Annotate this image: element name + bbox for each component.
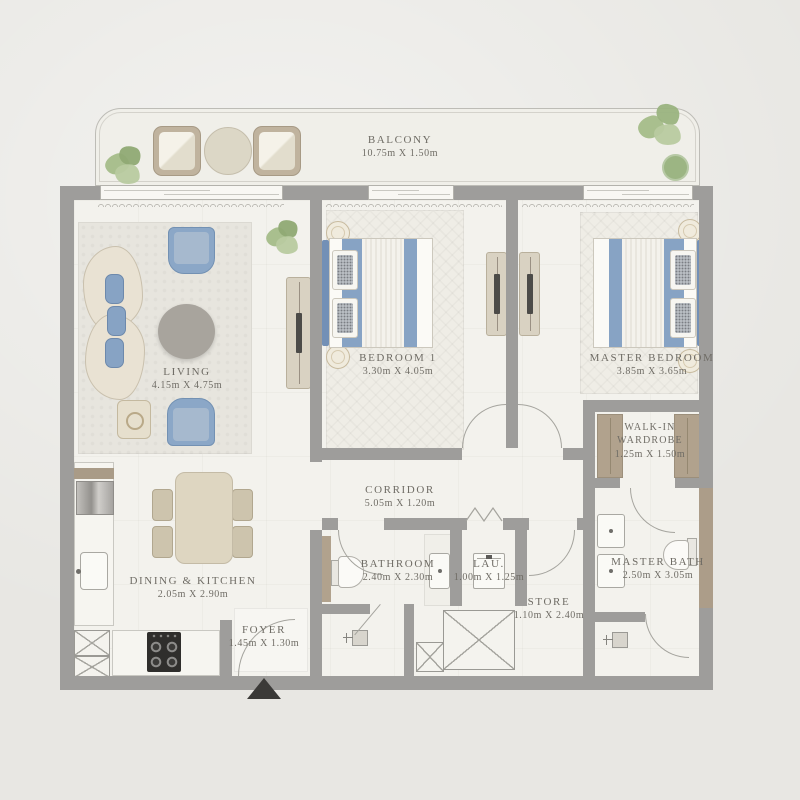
kitchen-cabinet bbox=[74, 656, 110, 678]
room-label-bedroom1: BEDROOM 1 3.30m X 4.05m bbox=[359, 352, 437, 377]
room-dims: 3.30m X 4.05m bbox=[359, 366, 437, 377]
balcony-round-table bbox=[204, 127, 252, 175]
room-dims: 1.10m X 2.40m bbox=[514, 610, 585, 621]
curtain-living bbox=[98, 201, 284, 207]
dining-chair bbox=[232, 489, 253, 521]
wall-living-bedroom1 bbox=[310, 200, 322, 462]
room-dims: 1.00m X 1.25m bbox=[454, 572, 525, 583]
room-label-bathroom: BATHROOM 2.40m X 2.30m bbox=[361, 558, 436, 583]
plant-leaf bbox=[114, 162, 142, 185]
room-name: MASTER BATH bbox=[611, 556, 705, 568]
room-name: WALK-IN WARDROBE bbox=[608, 422, 692, 447]
balcony-chair bbox=[253, 126, 301, 176]
kitchen-sink bbox=[80, 552, 108, 590]
room-name: LIVING bbox=[152, 366, 223, 378]
room-name: BATHROOM bbox=[361, 558, 436, 570]
room-dims: 2.05m X 2.90m bbox=[129, 589, 256, 600]
room-name: LAU. bbox=[454, 558, 525, 570]
wall-foyer-east bbox=[310, 530, 322, 676]
wall-wood-accent bbox=[699, 488, 713, 608]
wall-corridor-south bbox=[322, 518, 338, 530]
tv-console-living bbox=[286, 277, 311, 389]
room-dims: 1.45m X 1.30m bbox=[229, 638, 300, 649]
kitchen-shelf bbox=[74, 468, 114, 479]
room-name: BEDROOM 1 bbox=[359, 352, 437, 364]
room-dims: 2.40m X 2.30m bbox=[361, 572, 436, 583]
armchair bbox=[167, 398, 215, 446]
room-name: CORRIDOR bbox=[365, 484, 436, 496]
room-label-dining-kitchen: DINING & KITCHEN 2.05m X 2.90m bbox=[129, 575, 256, 600]
tv-console-master bbox=[519, 252, 540, 336]
sliding-door-living bbox=[100, 185, 283, 200]
sofa-cushion bbox=[105, 338, 124, 368]
room-label-corridor: CORRIDOR 5.05m X 1.20m bbox=[365, 484, 436, 509]
room-dims: 4.15m X 4.75m bbox=[152, 380, 223, 391]
plant-leaf bbox=[275, 235, 298, 254]
entry-arrow-icon bbox=[247, 678, 281, 699]
wall-bedroom-divider bbox=[506, 200, 518, 448]
wall-right bbox=[699, 186, 713, 690]
wall-masterbath-south bbox=[595, 612, 645, 622]
room-name: BALCONY bbox=[362, 134, 438, 146]
dining-chair bbox=[232, 526, 253, 558]
wall-bottom bbox=[60, 676, 713, 690]
bed-duvet bbox=[622, 239, 664, 347]
wall-bedroom1-south bbox=[322, 448, 462, 460]
sliding-door-master bbox=[583, 185, 693, 200]
tv-console-bedroom1 bbox=[486, 252, 507, 336]
room-name: FOYER bbox=[229, 624, 300, 636]
curtain-master bbox=[522, 201, 694, 207]
room-label-walk-in: WALK-IN WARDROBE 1.25m X 1.50m bbox=[608, 422, 692, 460]
bed-master bbox=[592, 238, 704, 348]
service-shaft bbox=[416, 642, 444, 672]
wall-corridor-south bbox=[577, 518, 583, 530]
room-label-laundry: LAU. 1.00m X 1.25m bbox=[454, 558, 525, 583]
room-label-living: LIVING 4.15m X 4.75m bbox=[152, 366, 223, 391]
sliding-door-bedroom1 bbox=[368, 185, 454, 200]
bed-duvet bbox=[362, 239, 404, 347]
bed-throw bbox=[609, 239, 622, 347]
wall-bathroom-south bbox=[322, 604, 370, 614]
room-dims: 1.25m X 1.50m bbox=[608, 449, 692, 460]
balcony-chair bbox=[153, 126, 201, 176]
coffee-table bbox=[158, 304, 215, 359]
stove-icon bbox=[147, 632, 181, 672]
armchair bbox=[168, 227, 215, 274]
plant-icon bbox=[103, 144, 149, 188]
plant-leaf bbox=[653, 123, 682, 147]
vanity-basin bbox=[597, 514, 625, 548]
bathroom-wood-strip bbox=[322, 536, 331, 602]
floor-plan: BALCONY 10.75m X 1.50m bbox=[0, 0, 800, 800]
plant-icon bbox=[636, 102, 690, 152]
room-dims: 2.50m X 3.05m bbox=[611, 570, 705, 581]
dining-table bbox=[175, 472, 233, 564]
room-name: MASTER BEDROOM bbox=[590, 352, 715, 364]
kitchen-cabinet bbox=[74, 630, 110, 656]
bed-pillow bbox=[670, 298, 696, 338]
bed-throw bbox=[404, 239, 417, 347]
dining-chair bbox=[152, 489, 173, 521]
room-label-balcony: BALCONY 10.75m X 1.50m bbox=[362, 134, 438, 159]
room-label-foyer: FOYER 1.45m X 1.30m bbox=[229, 624, 300, 649]
room-dims: 5.05m X 1.20m bbox=[365, 498, 436, 509]
wall-walkin-masterbath bbox=[675, 478, 700, 488]
bed-pillow bbox=[332, 298, 358, 338]
plant-icon bbox=[264, 218, 304, 258]
bed-headboard bbox=[322, 240, 329, 346]
wall-shower-east bbox=[404, 604, 414, 676]
wall-corridor-east bbox=[583, 400, 595, 676]
wall-walkin-masterbath bbox=[595, 478, 620, 488]
room-name: STORE bbox=[514, 596, 585, 608]
bifold-door-laundry bbox=[465, 506, 503, 522]
bed-bedroom1 bbox=[322, 238, 434, 348]
shrub-icon bbox=[662, 154, 689, 181]
room-name: DINING & KITCHEN bbox=[129, 575, 256, 587]
nightstand bbox=[326, 345, 350, 369]
fridge-icon bbox=[76, 481, 114, 515]
dining-chair bbox=[152, 526, 173, 558]
wall-left bbox=[60, 186, 74, 690]
shower-head-icon bbox=[612, 632, 628, 648]
sofa-cushion bbox=[107, 306, 126, 336]
room-label-master-bath: MASTER BATH 2.50m X 3.05m bbox=[611, 556, 705, 581]
room-label-master-bedroom: MASTER BEDROOM 3.85m X 3.65m bbox=[590, 352, 715, 377]
room-label-store: STORE 1.10m X 2.40m bbox=[514, 596, 585, 621]
wall-corridor-south bbox=[503, 518, 529, 530]
bed-pillow bbox=[670, 250, 696, 290]
bed-pillow bbox=[332, 250, 358, 290]
wall-master-walkin bbox=[595, 400, 700, 412]
sofa bbox=[83, 246, 145, 398]
curtain-bedroom1 bbox=[326, 201, 502, 207]
room-dims: 3.85m X 3.65m bbox=[590, 366, 715, 377]
side-table bbox=[117, 400, 151, 439]
service-shaft bbox=[443, 610, 515, 670]
room-dims: 10.75m X 1.50m bbox=[362, 148, 438, 159]
sofa-cushion bbox=[105, 274, 124, 304]
wall-corridor-south bbox=[384, 518, 467, 530]
